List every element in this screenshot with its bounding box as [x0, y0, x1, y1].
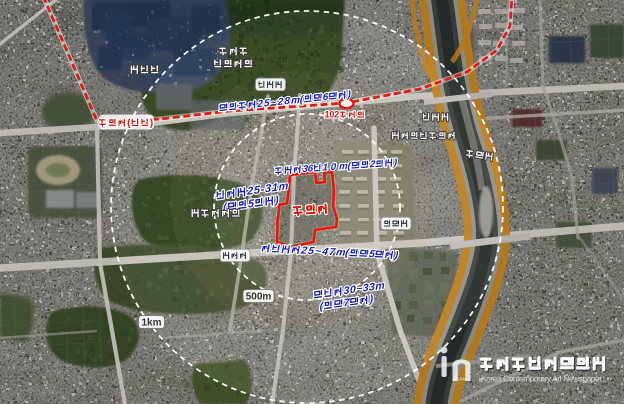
svg-text:500m: 500m — [246, 292, 272, 303]
svg-text:): ) — [150, 118, 153, 129]
svg-text:Korea Contemporary Art Newspap: Korea Contemporary Art Newspaper — [481, 374, 602, 384]
svg-text:1km: 1km — [141, 318, 161, 329]
svg-text:5: 5 — [248, 198, 255, 211]
svg-text:102: 102 — [325, 110, 340, 120]
svg-text:36: 36 — [302, 163, 314, 175]
svg-text:): ) — [369, 293, 374, 306]
svg-text:6: 6 — [323, 92, 329, 104]
svg-text:10m: 10m — [322, 161, 348, 174]
svg-text:KCAN: KCAN — [453, 377, 467, 382]
svg-text:): ) — [392, 157, 397, 168]
svg-text:25~47m: 25~47m — [299, 246, 346, 259]
svg-text:): ) — [274, 194, 279, 207]
